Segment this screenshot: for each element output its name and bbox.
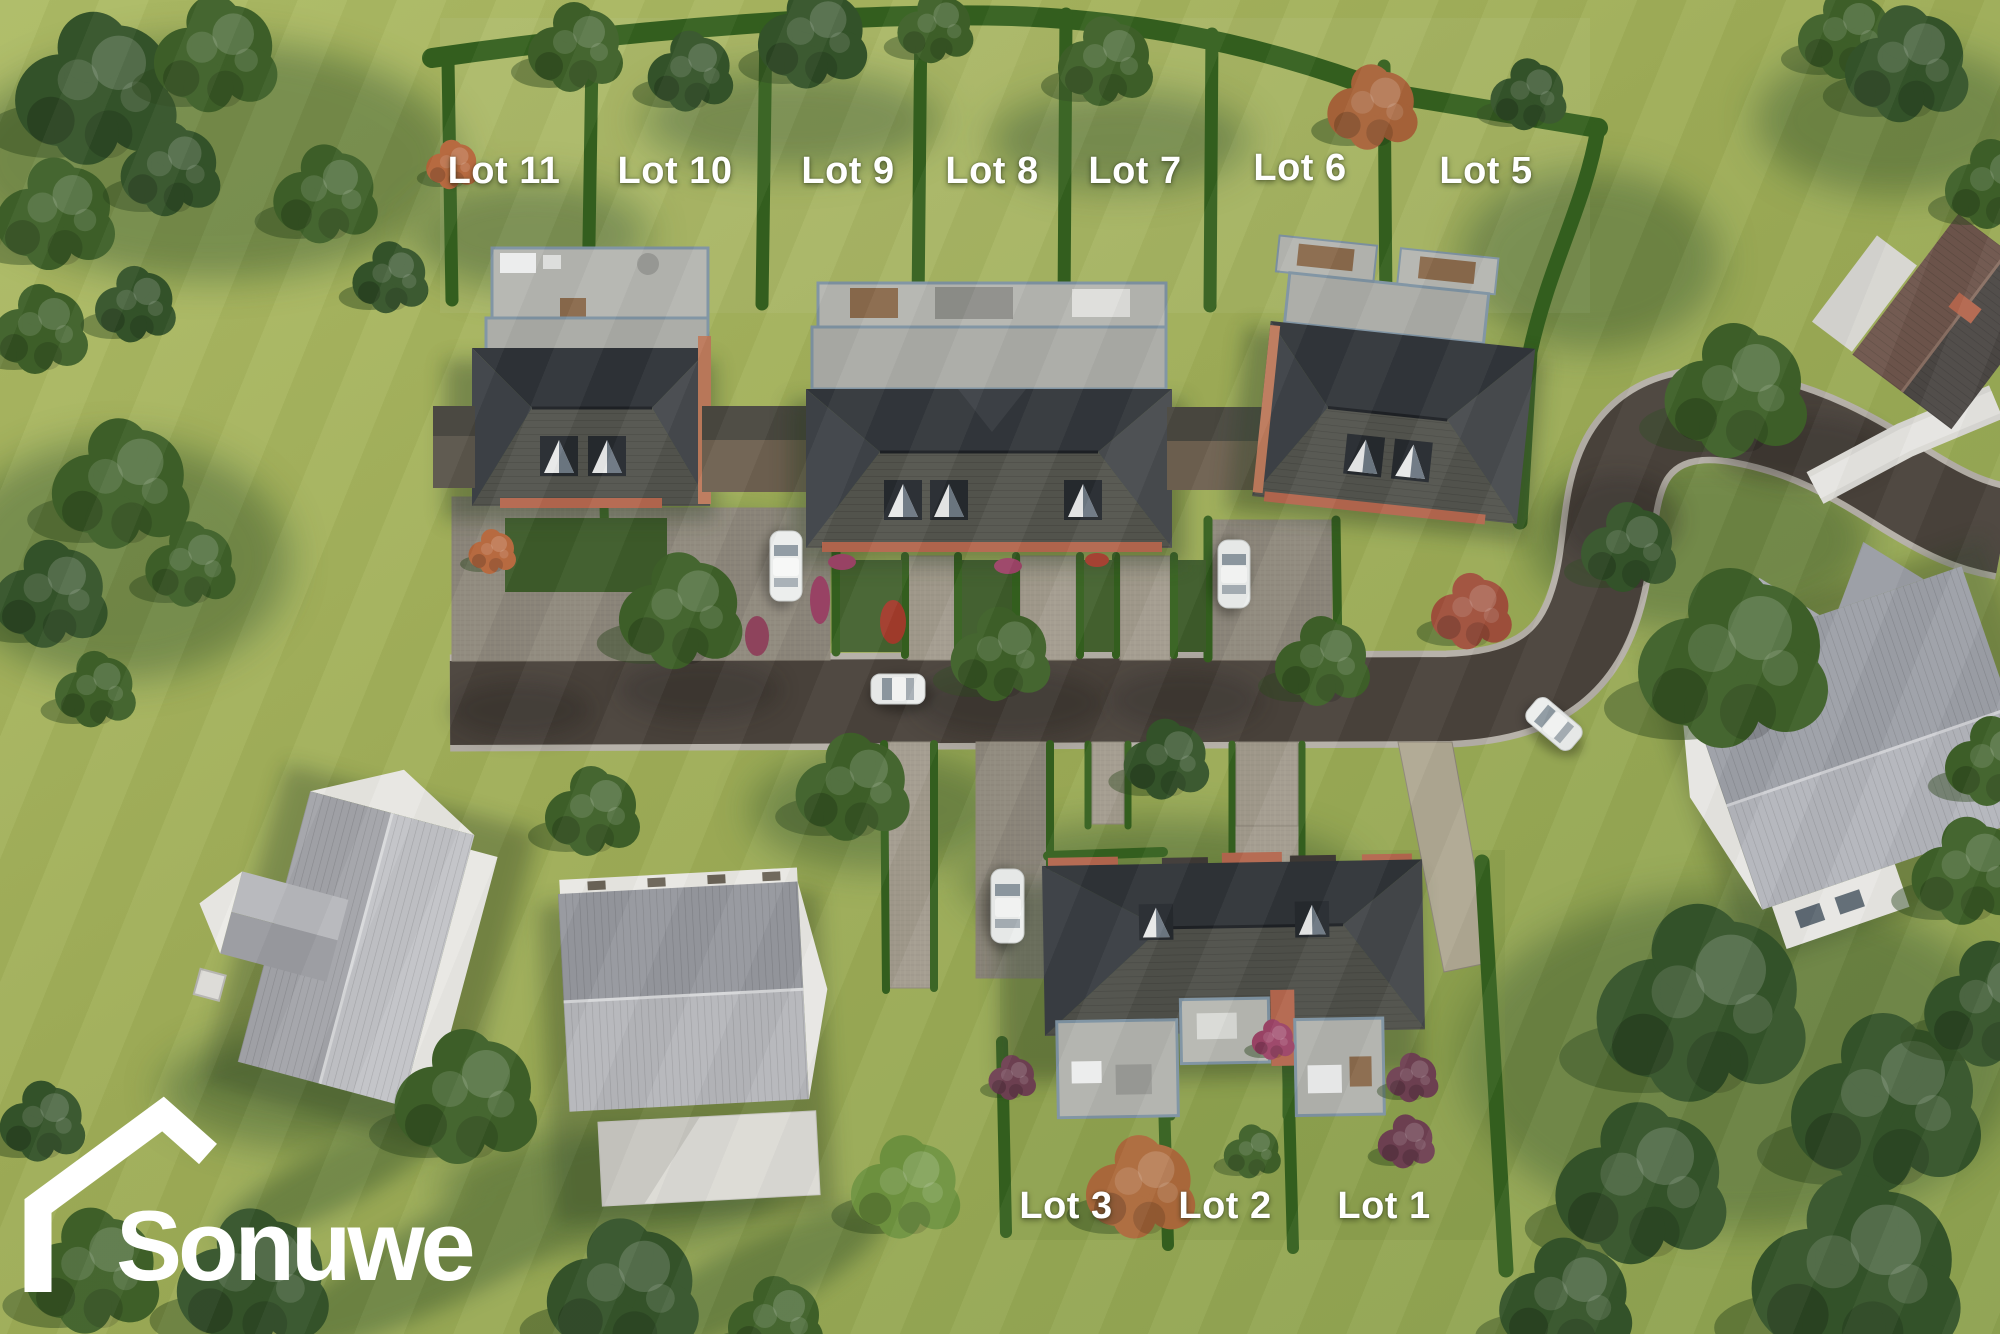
path-house2-left — [908, 556, 956, 660]
path-house3 — [1120, 556, 1170, 660]
lot-label-9: Lot 9 — [801, 152, 894, 190]
brand-logo-text: Sonuwe — [116, 1196, 472, 1295]
lot-label-2: Lot 2 — [1178, 1187, 1271, 1225]
car — [761, 529, 802, 609]
lot-label-5: Lot 5 — [1439, 152, 1532, 190]
existing-house-left-2 — [537, 866, 839, 1224]
car — [982, 867, 1024, 951]
lot-label-8: Lot 8 — [945, 152, 1038, 190]
lot-label-7: Lot 7 — [1088, 152, 1181, 190]
car — [869, 674, 933, 713]
lot-label-6: Lot 6 — [1253, 149, 1346, 187]
garage-left — [433, 406, 475, 436]
site-plan-render: Lot 11 Lot 10 Lot 9 Lot 8 Lot 7 Lot 6 Lo… — [0, 0, 2000, 1334]
car — [1209, 538, 1250, 616]
lot-label-1: Lot 1 — [1337, 1187, 1430, 1225]
lot-label-10: Lot 10 — [618, 152, 733, 190]
lot-label-3: Lot 3 — [1019, 1187, 1112, 1225]
site-plan-scene — [0, 0, 2000, 1334]
lot-label-11: Lot 11 — [448, 152, 561, 190]
